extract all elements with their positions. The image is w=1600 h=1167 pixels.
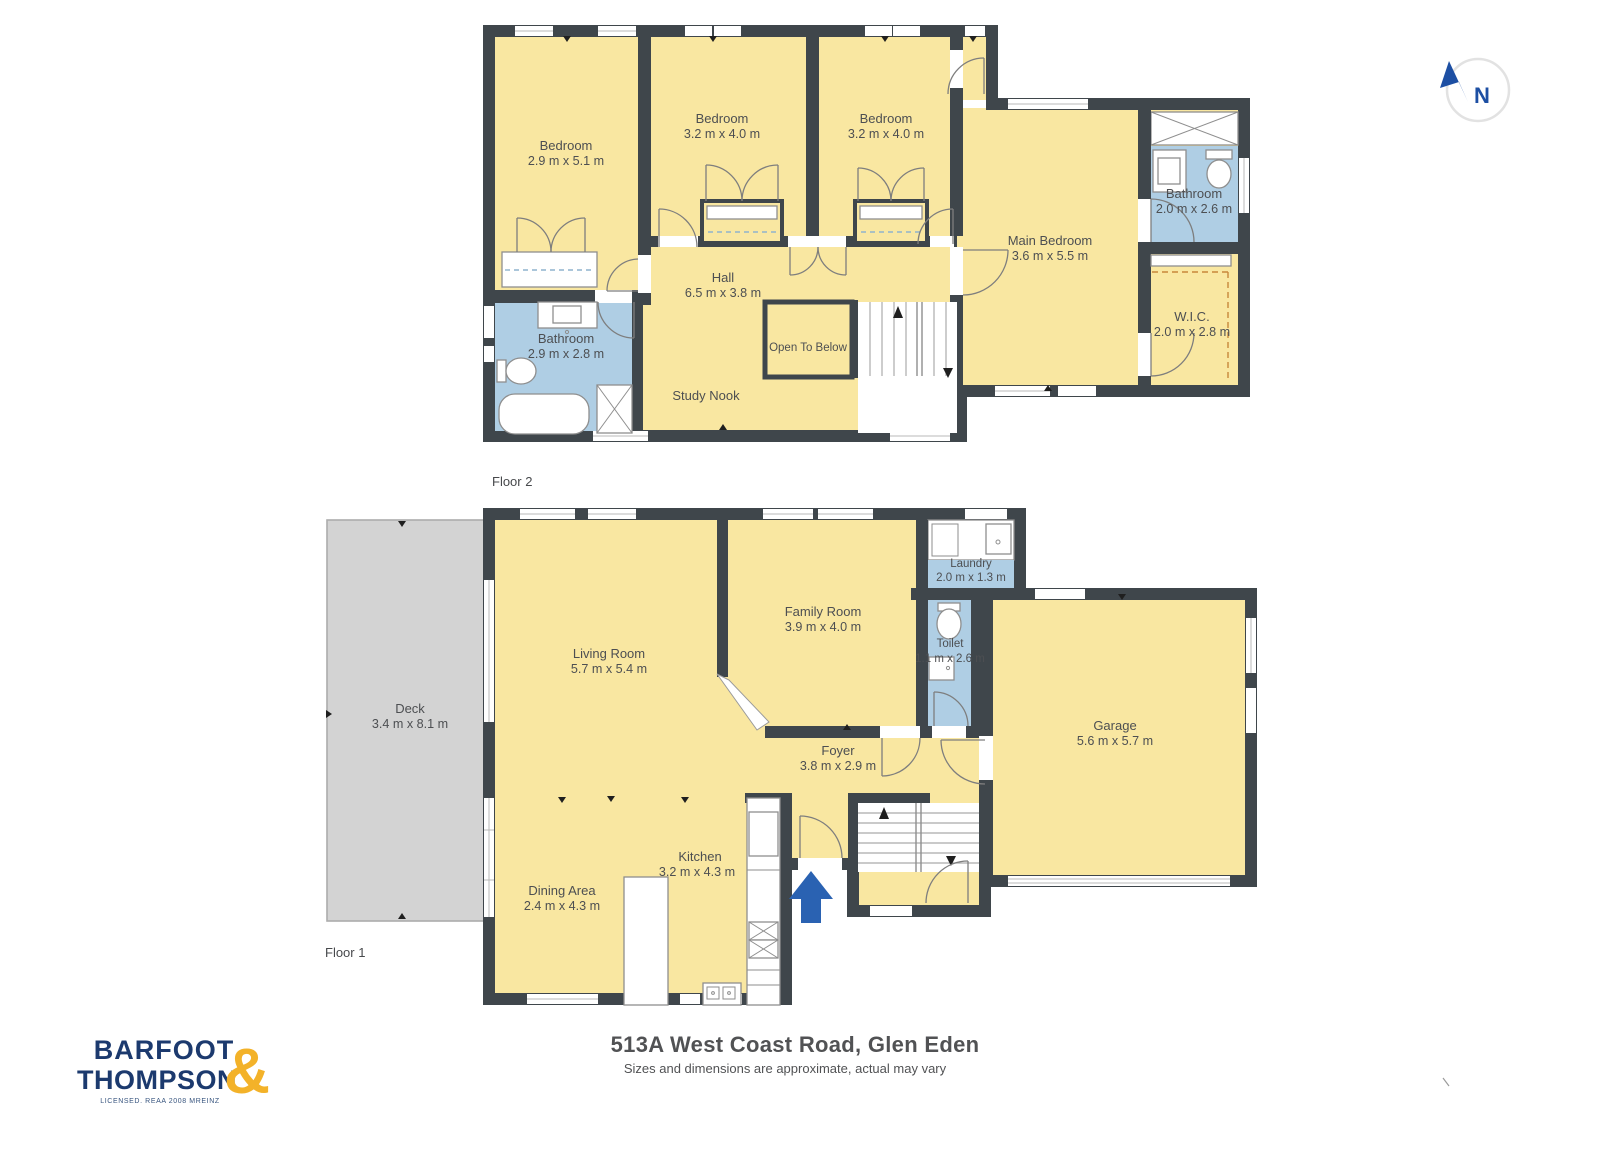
floor2-stairs [858, 302, 957, 433]
floor1-label: Floor 1 [325, 945, 365, 960]
page-subtitle: Sizes and dimensions are approximate, ac… [624, 1061, 947, 1076]
room-dims-toilet: 1.1 m x 2.6 m [915, 653, 985, 665]
north-compass-icon: N [1440, 59, 1509, 121]
room-label-main-bedroom: Main Bedroom [1008, 233, 1093, 248]
floor2-label: Floor 2 [492, 474, 532, 489]
wardrobe-bedroom-right [855, 201, 927, 243]
floor-plan-canvas: Bedroom 2.9 m x 5.1 m Bedroom 3.2 m x 4.… [0, 0, 1600, 1167]
room-label-bedroom-left: Bedroom [540, 138, 593, 153]
room-label-family: Family Room [785, 604, 862, 619]
open-to-below-box [765, 302, 852, 377]
room-dims-deck: 3.4 m x 8.1 m [372, 717, 448, 731]
room-dims-living: 5.7 m x 5.4 m [571, 662, 647, 676]
room-dims-wic: 2.0 m x 2.8 m [1154, 325, 1230, 339]
logo-line1: BARFOOT [94, 1035, 234, 1065]
room-label-deck: Deck [395, 701, 425, 716]
room-dims-ensuite: 2.0 m x 2.6 m [1156, 202, 1232, 216]
room-label-hall: Hall [712, 270, 735, 285]
room-label-open-to-below: Open To Below [769, 342, 847, 354]
wardrobe-bedroom-mid [702, 201, 782, 243]
room-label-bedroom-mid: Bedroom [696, 111, 749, 126]
room-label-living: Living Room [573, 646, 645, 661]
room-label-garage: Garage [1093, 718, 1136, 733]
floor-plan-page: Bedroom 2.9 m x 5.1 m Bedroom 3.2 m x 4.… [0, 0, 1600, 1167]
room-label-wic: W.I.C. [1174, 309, 1209, 324]
room-dims-bedroom-mid: 3.2 m x 4.0 m [684, 127, 760, 141]
title-block: 513A West Coast Road, Glen Eden Sizes an… [611, 1032, 980, 1076]
room-dims-bathroom2: 2.9 m x 2.8 m [528, 347, 604, 361]
room-dims-bedroom-right: 3.2 m x 4.0 m [848, 127, 924, 141]
page-title: 513A West Coast Road, Glen Eden [611, 1032, 980, 1057]
logo-ampersand-icon: & [224, 1035, 270, 1107]
room-dims-family: 3.9 m x 4.0 m [785, 620, 861, 634]
logo-line2: THOMPSON [77, 1065, 237, 1095]
room-label-bedroom-right: Bedroom [860, 111, 913, 126]
floor1-footprint [489, 514, 1251, 999]
stray-mark [1443, 1078, 1449, 1086]
room-label-toilet: Toilet [937, 638, 965, 650]
room-label-ensuite: Bathroom [1166, 186, 1222, 201]
linen-closet [1151, 112, 1238, 145]
room-label-foyer: Foyer [821, 743, 855, 758]
room-label-dining: Dining Area [528, 883, 596, 898]
room-dims-garage: 5.6 m x 5.7 m [1077, 734, 1153, 748]
floor1-plan: Deck 3.4 m x 8.1 m Living Room 5.7 m x 5… [325, 509, 1256, 1005]
logo-tagline: LICENSED. REAA 2008 MREINZ [100, 1098, 220, 1105]
closet-bedroom-left [502, 252, 597, 287]
room-label-laundry: Laundry [950, 558, 992, 570]
room-dims-hall: 6.5 m x 3.8 m [685, 286, 761, 300]
agency-logo: BARFOOT THOMPSON & LICENSED. REAA 2008 M… [77, 1035, 270, 1107]
compass-north-label: N [1474, 83, 1490, 108]
room-label-study-nook: Study Nook [672, 388, 740, 403]
room-label-bathroom2: Bathroom [538, 331, 594, 346]
room-dims-bedroom-left: 2.9 m x 5.1 m [528, 154, 604, 168]
floor2-plan: Bedroom 2.9 m x 5.1 m Bedroom 3.2 m x 4.… [484, 25, 1249, 489]
room-dims-foyer: 3.8 m x 2.9 m [800, 759, 876, 773]
entry-arrow-icon [789, 871, 833, 923]
room-label-kitchen: Kitchen [678, 849, 721, 864]
room-dims-kitchen: 3.2 m x 4.3 m [659, 865, 735, 879]
room-dims-main-bedroom: 3.6 m x 5.5 m [1012, 249, 1088, 263]
room-dims-dining: 2.4 m x 4.3 m [524, 899, 600, 913]
room-dims-laundry: 2.0 m x 1.3 m [936, 572, 1006, 584]
